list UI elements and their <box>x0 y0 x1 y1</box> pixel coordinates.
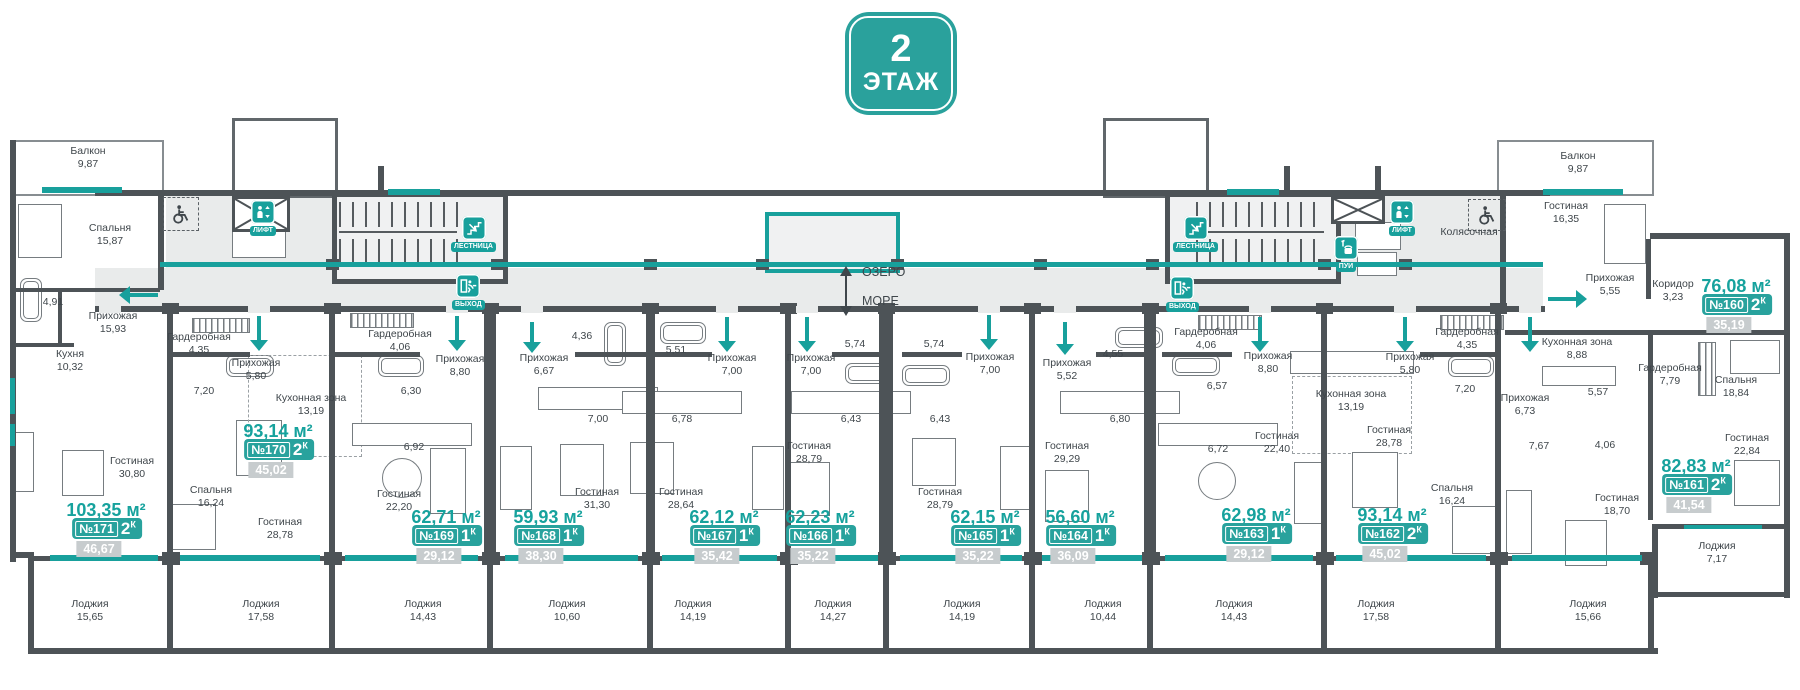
apartment-number: №163 <box>1225 526 1268 542</box>
room-label: 6,78 <box>672 413 692 426</box>
room-label: Прихожая5,80 <box>1386 351 1435 377</box>
wall-pier <box>1490 552 1508 565</box>
window-glazing <box>1684 525 1762 529</box>
room-label: 6,30 <box>401 385 421 398</box>
wall-pier <box>482 552 500 565</box>
apartment-living-area: 35,19 <box>1706 317 1751 333</box>
room-label: Спальня16,24 <box>190 484 232 510</box>
sofa <box>1506 490 1532 554</box>
wall <box>1652 592 1790 597</box>
lift-label: ЛИФТ <box>1389 226 1415 236</box>
bathtub-icon <box>1172 355 1220 376</box>
roof-protrusion-right <box>1103 118 1209 198</box>
room-label: Прихожая6,67 <box>520 352 569 378</box>
sofa <box>752 446 784 510</box>
lift-badge-right: ЛИФТ <box>1389 200 1415 236</box>
wall-pier <box>324 303 341 314</box>
bathtub-icon <box>902 365 950 386</box>
door-opening <box>796 306 818 313</box>
room-label: 6,57 <box>1207 380 1227 393</box>
wall <box>10 140 16 562</box>
door-opening <box>248 306 270 313</box>
cleaning-bucket-icon <box>1334 236 1358 260</box>
room-label: Прихожая8,80 <box>436 353 485 379</box>
room-label: Балкон9,87 <box>70 145 105 171</box>
apartment-living-area: 35,42 <box>694 548 739 564</box>
wall-pier <box>162 552 180 565</box>
apartment-badge[interactable]: №1651К <box>951 525 1021 546</box>
entrance-arrow-icon <box>530 322 534 342</box>
apartment-badge[interactable]: №1641К <box>1046 525 1116 546</box>
wall <box>1784 233 1790 598</box>
utility-label: ПУИ <box>1336 262 1356 272</box>
wall <box>1646 239 1651 299</box>
room-label: Гостиная16,35 <box>1544 200 1588 226</box>
room-label: Гардеробная4,06 <box>368 328 432 354</box>
floor-number: 2 <box>890 30 911 68</box>
door-opening <box>521 306 543 313</box>
floor-badge: 2 ЭТАЖ <box>845 12 957 115</box>
stairs-label: ЛЕСТНИЦА <box>451 242 496 252</box>
wall <box>329 560 335 650</box>
window-glazing <box>10 424 15 446</box>
wall <box>883 560 889 650</box>
wall-pier <box>642 552 660 565</box>
room-label: 4,36 <box>572 330 592 343</box>
room-label: 5,74 <box>924 338 944 351</box>
apartment-number: №171 <box>75 521 118 537</box>
wall-pier <box>1142 552 1160 565</box>
room-label: Прихожая15,93 <box>89 310 138 336</box>
wheelchair-icon <box>1476 204 1498 226</box>
room-label: Гостиная28,79 <box>787 440 831 466</box>
apartment-type: 1К <box>1000 527 1015 544</box>
wall <box>1144 312 1156 558</box>
room-label: Лоджия10,44 <box>1084 598 1121 624</box>
wall-pier <box>1024 552 1042 565</box>
sofa <box>1294 462 1322 524</box>
room-label: Прихожая6,73 <box>1501 392 1550 418</box>
room-label: Гостиная18,70 <box>1595 492 1639 518</box>
apartment-number: №167 <box>693 528 736 544</box>
apartment-number: №165 <box>954 528 997 544</box>
room-label: 6,43 <box>841 413 861 426</box>
wall <box>1284 166 1290 192</box>
room-label: 7,67 <box>1529 440 1549 453</box>
wall <box>10 343 74 347</box>
apartment-badge[interactable]: №1702К <box>244 439 314 460</box>
exit-icon <box>1170 276 1194 300</box>
room-label: Лоджия15,66 <box>1569 598 1606 624</box>
apartment-type: 1К <box>739 527 754 544</box>
wall-pier <box>1316 303 1333 314</box>
utility-badge: ПУИ <box>1334 236 1358 272</box>
room-label: Гостиная28,78 <box>258 516 302 542</box>
window-glazing <box>10 378 15 414</box>
bathtub-icon <box>20 278 42 322</box>
room-label: Прихожая8,80 <box>1244 350 1293 376</box>
apartment-badge[interactable]: №1712К <box>72 518 142 539</box>
room-label: 5,51 <box>666 344 686 357</box>
apartment-type: 1К <box>835 527 850 544</box>
room-label: Балкон9,87 <box>1560 150 1595 176</box>
wall <box>28 648 1658 654</box>
wall <box>1321 312 1327 558</box>
bed <box>18 204 62 258</box>
apartment-number: №164 <box>1049 528 1092 544</box>
apartment-living-area: 29,12 <box>416 548 461 564</box>
room-label: 6,92 <box>404 441 424 454</box>
stroller-room-label: Колясочная <box>1440 226 1497 239</box>
room-label: Кухонная зона8,88 <box>1542 336 1613 362</box>
room-label: 6,72 <box>1208 443 1228 456</box>
stair-landing <box>1206 231 1324 233</box>
wall <box>167 560 173 650</box>
bed <box>1730 340 1780 374</box>
exit-arrow-icon <box>130 293 158 297</box>
wall <box>1321 560 1327 650</box>
apartment-type: 1К <box>563 527 578 544</box>
room-label: 6,43 <box>930 413 950 426</box>
bed <box>168 504 216 550</box>
apartment-badge[interactable]: №1622К <box>1358 523 1428 544</box>
wall <box>10 288 160 292</box>
room-label: 7,20 <box>194 385 214 398</box>
compass-down-label: МОРЕ <box>862 294 899 308</box>
bed <box>1452 506 1496 554</box>
kitchen-counter <box>622 391 742 414</box>
room-label: 7,00 <box>588 413 608 426</box>
stairs-icon <box>1184 216 1208 240</box>
stairs-label: ЛЕСТНИЦА <box>1173 242 1218 252</box>
room-label: Лоджия7,17 <box>1698 540 1735 566</box>
room-label: Гостиная22,40 <box>1255 430 1299 456</box>
room-label: Лоджия14,43 <box>1215 598 1252 624</box>
wall <box>329 312 335 558</box>
wall-pier <box>324 552 342 565</box>
apartment-number: №169 <box>415 528 458 544</box>
wall <box>1652 524 1658 598</box>
room-label: 4,06 <box>1595 439 1615 452</box>
room-label: Спальня16,24 <box>1431 482 1473 508</box>
entrance-arrow-icon <box>1063 322 1067 344</box>
room-label: Прихожая5,55 <box>1586 272 1635 298</box>
wall <box>832 352 879 357</box>
wall <box>484 312 496 558</box>
wall-pier <box>162 303 179 314</box>
sofa <box>1000 446 1032 510</box>
room-label: Прихожая7,00 <box>966 351 1015 377</box>
direction-arrow-icon <box>838 266 854 316</box>
exit-badge-right: ВЫХОД <box>1166 276 1199 312</box>
apartment-living-area: 35,22 <box>790 548 835 564</box>
room-label: Гардеробная4,35 <box>1435 326 1499 352</box>
entrance-arrow-icon <box>1528 317 1532 341</box>
wall <box>1375 166 1381 192</box>
room-label: 6,80 <box>1110 413 1130 426</box>
wall <box>1650 233 1790 239</box>
apartment-type: 1К <box>1271 525 1286 542</box>
entrance-arrow-icon <box>805 317 809 341</box>
apartment-badge[interactable]: №1602К <box>1702 294 1772 315</box>
wall-pier <box>1490 303 1507 314</box>
ventilation-shaft-right <box>1331 196 1385 224</box>
exit-icon <box>456 274 480 298</box>
wall-pier <box>1316 552 1334 565</box>
wall <box>647 560 653 650</box>
exit-arrow-icon <box>1548 297 1576 301</box>
bed <box>1734 460 1780 506</box>
wall <box>28 560 34 652</box>
compass-up-label: ОЗЕРО <box>862 265 905 279</box>
wall <box>1147 560 1153 650</box>
room-label: 5,57 <box>1588 386 1608 399</box>
entrance-arrow-icon <box>725 317 729 341</box>
room-label: 4,91 <box>43 296 63 309</box>
room-label: Гостиная30,80 <box>110 455 154 481</box>
room-label: Прихожая5,52 <box>1043 357 1092 383</box>
room-label: Лоджия14,43 <box>404 598 441 624</box>
window-glazing <box>42 187 122 193</box>
wall-pier <box>642 303 659 314</box>
room-label: Лоджия14,19 <box>674 598 711 624</box>
wall <box>378 166 384 192</box>
kitchen-counter <box>1060 391 1180 414</box>
window-glazing <box>1227 189 1279 195</box>
bathtub-icon <box>660 322 706 344</box>
room-label: 4,55 <box>1103 348 1123 361</box>
room-label: Спальня18,84 <box>1715 374 1757 400</box>
sofa <box>500 446 532 510</box>
apartment-number: №162 <box>1361 526 1404 542</box>
room-label: Прихожая7,00 <box>787 352 836 378</box>
apartment-living-area: 38,30 <box>518 548 563 564</box>
wall <box>785 560 791 650</box>
exit-label: ВЫХОД <box>1166 302 1199 312</box>
room-label: Гардеробная4,06 <box>1174 326 1238 352</box>
sofa <box>430 448 466 514</box>
apartment-type: 2К <box>1711 476 1726 493</box>
window-glazing <box>388 189 440 195</box>
wheelchair-icon <box>170 203 192 225</box>
apartment-number: №166 <box>789 528 832 544</box>
wheelchair-zone <box>163 197 199 231</box>
apartment-living-area: 45,02 <box>248 462 293 478</box>
entrance-arrow-icon <box>1403 317 1407 341</box>
sofa <box>14 432 34 492</box>
room-label: Прихожая7,00 <box>708 352 757 378</box>
wardrobe <box>350 313 414 328</box>
room-label: Кухонная зона13,19 <box>276 392 347 418</box>
apartment-badge[interactable]: №1671К <box>690 525 760 546</box>
lift-badge-left: ЛИФТ <box>250 200 276 236</box>
apartment-number: №168 <box>517 528 560 544</box>
room-label: Лоджия10,60 <box>548 598 585 624</box>
window-glazing <box>1543 189 1623 195</box>
wall-pier <box>1142 303 1159 314</box>
entrance-arrow-icon <box>1258 317 1262 341</box>
wall <box>879 312 893 558</box>
door-opening <box>978 306 1000 313</box>
room-label: Лоджия14,27 <box>814 598 851 624</box>
window-glazing <box>180 555 320 561</box>
lift-icon <box>1390 200 1414 224</box>
apartment-type: 2К <box>293 441 308 458</box>
room-label: Лоджия14,19 <box>943 598 980 624</box>
apartment-living-area: 36,09 <box>1050 548 1095 564</box>
round-table <box>1198 462 1236 500</box>
room-label: Кухонная зона13,19 <box>1316 388 1387 414</box>
entrance-arrow-icon <box>257 316 261 340</box>
apartment-badge[interactable]: №1612К <box>1662 474 1732 495</box>
room-label: Спальня15,87 <box>89 222 131 248</box>
entrance-arrow-icon <box>987 315 991 339</box>
kitchen-counter <box>1542 366 1616 386</box>
apartment-number: №170 <box>247 442 290 458</box>
exit-badge-left: ВЫХОД <box>452 274 485 310</box>
apartment-number: №160 <box>1705 297 1748 313</box>
stairs-badge-right: ЛЕСТНИЦА <box>1173 216 1218 252</box>
door-opening <box>716 306 738 313</box>
wall <box>902 352 962 357</box>
room-label: Гардеробная4,35 <box>167 331 231 357</box>
floor-label: ЭТАЖ <box>863 68 939 97</box>
apartment-living-area: 46,67 <box>76 541 121 557</box>
wall <box>1029 312 1035 558</box>
apartment-type: 2К <box>1407 525 1422 542</box>
door-opening <box>1249 306 1271 313</box>
wall <box>95 190 1550 196</box>
room-label: Гостиная28,78 <box>1367 424 1411 450</box>
door-opening <box>1054 306 1076 313</box>
stair-landing <box>339 231 457 233</box>
lift-label: ЛИФТ <box>250 226 276 236</box>
exit-label: ВЫХОД <box>452 300 485 310</box>
apartment-living-area: 45,02 <box>1362 546 1407 562</box>
wall <box>1495 560 1501 650</box>
dining-table <box>1352 452 1398 508</box>
dining-table <box>62 450 104 496</box>
bathtub-icon <box>378 355 424 377</box>
entrance-arrow-icon <box>455 316 459 340</box>
dining-table <box>912 438 956 486</box>
apartment-number: №161 <box>1665 477 1708 493</box>
wall <box>646 312 655 558</box>
apartment-living-area: 35,22 <box>955 548 1000 564</box>
stairs-badge-left: ЛЕСТНИЦА <box>451 216 496 252</box>
apartment-type: 1К <box>461 527 476 544</box>
room-label: Лоджия17,58 <box>242 598 279 624</box>
floor-plan: 2 ЭТАЖ <box>0 0 1800 690</box>
wall-pier <box>1024 303 1041 314</box>
door-opening <box>1519 306 1541 313</box>
door-opening <box>1394 306 1416 313</box>
apartment-type: 1К <box>1095 527 1110 544</box>
lift-icon <box>251 200 275 224</box>
room-label: 5,74 <box>845 338 865 351</box>
room-label: Гостиная22,84 <box>1725 432 1769 458</box>
stair-flight <box>339 202 467 227</box>
roof-protrusion-left <box>232 118 338 198</box>
room-label: Коридор3,23 <box>1652 278 1693 304</box>
stair-flight <box>339 239 467 264</box>
apartment-living-area: 41,54 <box>1666 497 1711 513</box>
wall-pier <box>780 303 797 314</box>
sofa <box>1604 204 1646 264</box>
room-label: Гостиная29,29 <box>1045 440 1089 466</box>
window-glazing <box>1512 555 1642 561</box>
wall-pier <box>878 552 896 565</box>
room-label: Лоджия17,58 <box>1357 598 1394 624</box>
apartment-badge[interactable]: №1681К <box>514 525 584 546</box>
room-label: 7,20 <box>1455 383 1475 396</box>
apartment-badge[interactable]: №1691К <box>412 525 482 546</box>
bathtub-icon <box>604 322 626 366</box>
wall <box>1029 560 1035 650</box>
bathtub-icon <box>1448 356 1494 377</box>
window-glazing <box>1336 555 1486 561</box>
apartment-type: 2К <box>1751 296 1766 313</box>
wall <box>487 560 493 650</box>
room-label: Кухня10,32 <box>56 348 84 374</box>
room-label: Прихожая5,80 <box>232 357 281 383</box>
room-label: Гардеробная7,79 <box>1638 362 1702 388</box>
wall <box>575 352 647 357</box>
wall <box>1162 352 1232 357</box>
apartment-badge[interactable]: №1661К <box>786 525 856 546</box>
stairs-icon <box>462 216 486 240</box>
kitchen-counter <box>791 391 911 414</box>
apartment-type: 2К <box>121 520 136 537</box>
room-label: Лоджия15,65 <box>71 598 108 624</box>
apartment-living-area: 29,12 <box>1226 546 1271 562</box>
apartment-badge[interactable]: №1631К <box>1222 523 1292 544</box>
